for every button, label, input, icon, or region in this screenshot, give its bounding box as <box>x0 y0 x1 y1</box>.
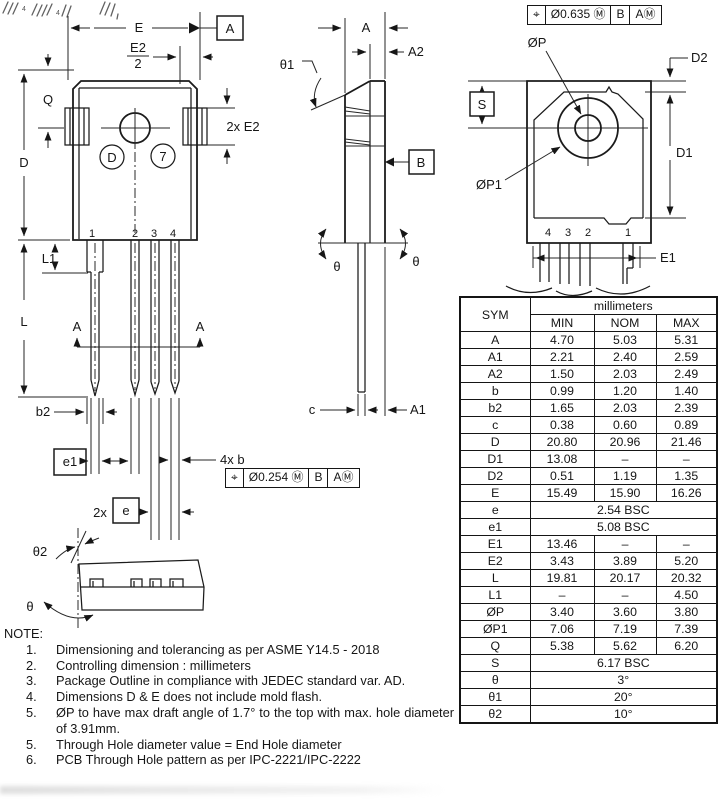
gdt-position-icon: ⌖ <box>226 469 244 487</box>
table-cell-max: – <box>656 536 717 553</box>
notes-title: NOTE: <box>4 626 456 642</box>
back-leads <box>506 243 650 296</box>
table-cell-max: 0.89 <box>656 417 717 434</box>
table-cell-max: 1.40 <box>656 383 717 400</box>
table-cell-nom: 3.60 <box>594 604 656 621</box>
table-cell-nom: 2.40 <box>594 349 656 366</box>
table-cell-nom: 2.03 <box>594 400 656 417</box>
table-cell-sym: D1 <box>460 451 530 468</box>
dim-label-D1: D1 <box>676 145 693 160</box>
table-row: b21.652.032.39 <box>460 400 717 417</box>
dim-label-e1: e1 <box>63 454 77 469</box>
note-text: Dimensioning and tolerancing as per ASME… <box>56 642 456 658</box>
dim-label-E2: E2 <box>130 40 146 55</box>
table-cell-min: 0.99 <box>530 383 594 400</box>
table-cell-nom: 3.89 <box>594 553 656 570</box>
table-cell-nom: 1.19 <box>594 468 656 485</box>
pin-number: 1 <box>89 228 95 240</box>
table-cell-nom: 0.60 <box>594 417 656 434</box>
bottom-profile-view: θ2 θ <box>26 528 204 628</box>
dim-label-A: A <box>362 20 371 35</box>
table-cell-span: 5.08 BSC <box>530 519 717 536</box>
note-number: 3. <box>26 673 56 689</box>
table-header-nom: NOM <box>594 315 656 332</box>
table-cell-min: 1.50 <box>530 366 594 383</box>
note-text: ØP to have max draft angle of 1.7° to th… <box>56 705 456 737</box>
table-cell-max: 16.26 <box>656 485 717 502</box>
datum-b-label: B <box>417 155 426 170</box>
table-cell-min: 3.40 <box>530 604 594 621</box>
table-cell-nom: 15.90 <box>594 485 656 502</box>
table-cell-min: 3.43 <box>530 553 594 570</box>
note-item: 5.ØP to have max draft angle of 1.7° to … <box>4 705 456 737</box>
circle-d-label: D <box>107 150 116 165</box>
scan-smudge <box>0 786 445 794</box>
table-cell-sym: L1 <box>460 587 530 604</box>
section-label-a: A <box>73 319 82 334</box>
table-header-min: MIN <box>530 315 594 332</box>
pin-number: 4 <box>545 227 551 239</box>
circle-7-label: 7 <box>159 149 166 164</box>
table-cell-sym: A1 <box>460 349 530 366</box>
table-cell-sym: E <box>460 485 530 502</box>
table-row: θ3° <box>460 672 717 689</box>
table-row: E23.433.895.20 <box>460 553 717 570</box>
dim-label-b2: b2 <box>36 404 50 419</box>
note-text: Controlling dimension : millimeters <box>56 658 456 674</box>
table-row: A12.212.402.59 <box>460 349 717 366</box>
note-number: 6. <box>26 752 56 768</box>
dim-label-2xE2: 2x E2 <box>226 119 259 134</box>
dim-label-theta: θ <box>26 599 33 614</box>
table-cell-nom: – <box>594 587 656 604</box>
package-outline-drawing: 4 4 E A E2 2 D Q <box>0 0 725 800</box>
dim-label-e: e <box>122 503 129 518</box>
gdt-datum-b: B <box>309 469 328 487</box>
table-row: A21.502.032.49 <box>460 366 717 383</box>
table-cell-sym: ØP <box>460 604 530 621</box>
dimension-table: SYM millimeters MIN NOM MAX A4.705.035.3… <box>459 296 718 724</box>
note-item: 6.PCB Through Hole pattern as per IPC-22… <box>4 752 456 768</box>
table-cell-sym: A <box>460 332 530 349</box>
table-cell-nom: – <box>594 536 656 553</box>
table-cell-sym: e <box>460 502 530 519</box>
table-cell-min: – <box>530 587 594 604</box>
table-row: c0.380.600.89 <box>460 417 717 434</box>
table-row: L1––4.50 <box>460 587 717 604</box>
table-row: Q5.385.626.20 <box>460 638 717 655</box>
note-number: 4. <box>26 689 56 705</box>
dim-label-4xb: 4x b <box>220 452 245 467</box>
table-row: E113.46–– <box>460 536 717 553</box>
note-text: PCB Through Hole pattern as per IPC-2221… <box>56 752 456 768</box>
note-text: Dimensions D & E does not include mold f… <box>56 689 456 705</box>
gdt-datum-am: AⓂ <box>328 469 358 487</box>
note-item: 4.Dimensions D & E does not include mold… <box>4 689 456 705</box>
table-cell-sym: D2 <box>460 468 530 485</box>
table-cell-sym: b <box>460 383 530 400</box>
table-cell-nom: 1.20 <box>594 383 656 400</box>
table-cell-sym: E2 <box>460 553 530 570</box>
table-cell-min: 4.70 <box>530 332 594 349</box>
table-cell-nom: – <box>594 451 656 468</box>
note-number: 5. <box>26 705 56 737</box>
table-cell-nom: 20.96 <box>594 434 656 451</box>
pin-number: 2 <box>585 227 591 239</box>
dim-label-Q: Q <box>43 92 53 107</box>
artifact-digit: 4 <box>56 10 60 17</box>
dim-label-2x: 2x <box>93 505 107 520</box>
dim-label-E2-den: 2 <box>134 56 141 71</box>
table-row: ØP3.403.603.80 <box>460 604 717 621</box>
front-leads <box>87 240 179 396</box>
dim-label-L1: L1 <box>42 251 56 266</box>
table-row: e2.54 BSC <box>460 502 717 519</box>
datum-a-label: A <box>226 21 235 36</box>
pin-number: 2 <box>132 228 138 240</box>
table-header-max: MAX <box>656 315 717 332</box>
artifact-digit: 4 <box>22 6 26 13</box>
table-row: θ120° <box>460 689 717 706</box>
table-cell-max: 1.35 <box>656 468 717 485</box>
table-cell-span: 10° <box>530 706 717 724</box>
note-number: 2. <box>26 658 56 674</box>
dim-label-theta-left: θ <box>333 259 340 274</box>
table-cell-sym: θ2 <box>460 706 530 724</box>
dim-label-theta1: θ1 <box>280 57 294 72</box>
dim-label-OP: ØP <box>528 35 547 50</box>
table-cell-max: 2.59 <box>656 349 717 366</box>
dim-label-A2: A2 <box>408 44 424 59</box>
section-label-a: A <box>196 319 205 334</box>
table-cell-max: 3.80 <box>656 604 717 621</box>
dim-label-S: S <box>478 97 487 112</box>
pin-number: 1 <box>625 227 631 239</box>
dim-label-theta-right: θ <box>412 254 419 269</box>
table-row: e15.08 BSC <box>460 519 717 536</box>
table-cell-sym: θ <box>460 672 530 689</box>
dim-label-theta2: θ2 <box>33 544 47 559</box>
note-item: 1.Dimensioning and tolerancing as per AS… <box>4 642 456 658</box>
table-cell-min: 1.65 <box>530 400 594 417</box>
notes-list: 1.Dimensioning and tolerancing as per AS… <box>4 642 456 768</box>
table-cell-min: 5.38 <box>530 638 594 655</box>
table-cell-min: 13.46 <box>530 536 594 553</box>
table-cell-sym: A2 <box>460 366 530 383</box>
table-row: E15.4915.9016.26 <box>460 485 717 502</box>
table-cell-sym: D <box>460 434 530 451</box>
table-cell-nom: 2.03 <box>594 366 656 383</box>
scan-artifacts: 4 4 <box>3 2 118 19</box>
table-cell-sym: θ1 <box>460 689 530 706</box>
notes-section: NOTE: 1.Dimensioning and tolerancing as … <box>4 626 456 768</box>
table-cell-max: 2.39 <box>656 400 717 417</box>
dim-label-OP1: ØP1 <box>476 177 502 192</box>
table-cell-max: 21.46 <box>656 434 717 451</box>
table-cell-sym: e1 <box>460 519 530 536</box>
note-item: 3.Package Outline in compliance with JED… <box>4 673 456 689</box>
dim-label-D2: D2 <box>691 50 708 65</box>
table-row: S6.17 BSC <box>460 655 717 672</box>
table-cell-nom: 7.19 <box>594 621 656 638</box>
table-row: A4.705.035.31 <box>460 332 717 349</box>
table-cell-min: 0.51 <box>530 468 594 485</box>
table-cell-nom: 5.03 <box>594 332 656 349</box>
table-row: D113.08–– <box>460 451 717 468</box>
datum-a-flag <box>189 23 200 34</box>
table-cell-span: 3° <box>530 672 717 689</box>
table-cell-max: 5.20 <box>656 553 717 570</box>
table-cell-sym: S <box>460 655 530 672</box>
table-cell-span: 2.54 BSC <box>530 502 717 519</box>
note-number: 1. <box>26 642 56 658</box>
datum-b-flag <box>385 158 394 167</box>
dim-table-body: A4.705.035.31A12.212.402.59A21.502.032.4… <box>460 332 717 724</box>
note-text: Package Outline in compliance with JEDEC… <box>56 673 456 689</box>
table-cell-max: – <box>656 451 717 468</box>
table-header-sym: SYM <box>460 297 530 332</box>
feature-control-frame-hole: ⌖ Ø0.635 Ⓜ B AⓂ <box>527 5 662 25</box>
dim-label-A1: A1 <box>410 402 426 417</box>
note-text: Through Hole diameter value = End Hole d… <box>56 737 456 753</box>
front-view: E A E2 2 D Q <box>18 12 260 540</box>
table-cell-max: 2.49 <box>656 366 717 383</box>
table-cell-max: 20.32 <box>656 570 717 587</box>
feature-control-frame-leads: ⌖ Ø0.254 Ⓜ B AⓂ <box>225 468 360 488</box>
table-row: θ210° <box>460 706 717 724</box>
table-cell-min: 13.08 <box>530 451 594 468</box>
table-row: ØP17.067.197.39 <box>460 621 717 638</box>
dim-label-D: D <box>19 155 28 170</box>
gdt-datum-b: B <box>611 6 630 24</box>
table-cell-min: 7.06 <box>530 621 594 638</box>
gdt-tolerance: Ø0.254 Ⓜ <box>244 469 310 487</box>
table-cell-max: 7.39 <box>656 621 717 638</box>
gdt-position-icon: ⌖ <box>528 6 546 24</box>
table-cell-max: 5.31 <box>656 332 717 349</box>
table-cell-min: 0.38 <box>530 417 594 434</box>
note-item: 5.Through Hole diameter value = End Hole… <box>4 737 456 753</box>
table-cell-sym: ØP1 <box>460 621 530 638</box>
table-cell-span: 20° <box>530 689 717 706</box>
table-cell-span: 6.17 BSC <box>530 655 717 672</box>
table-row: D20.8020.9621.46 <box>460 434 717 451</box>
table-cell-min: 15.49 <box>530 485 594 502</box>
table-cell-nom: 5.62 <box>594 638 656 655</box>
dim-label-L: L <box>20 314 27 329</box>
table-cell-sym: L <box>460 570 530 587</box>
note-item: 2.Controlling dimension : millimeters <box>4 658 456 674</box>
pin-number: 4 <box>170 228 176 240</box>
dim-label-c: c <box>309 402 316 417</box>
back-view: ØP D2 S ØP1 D1 4 3 2 1 <box>468 35 708 296</box>
table-cell-sym: b2 <box>460 400 530 417</box>
pin-number: 3 <box>151 228 157 240</box>
table-row: D20.511.191.35 <box>460 468 717 485</box>
table-cell-nom: 20.17 <box>594 570 656 587</box>
table-cell-max: 6.20 <box>656 638 717 655</box>
table-cell-sym: Q <box>460 638 530 655</box>
gdt-datum-am: AⓂ <box>630 6 660 24</box>
table-cell-max: 4.50 <box>656 587 717 604</box>
table-cell-sym: c <box>460 417 530 434</box>
table-header-unit: millimeters <box>530 297 717 315</box>
note-number: 5. <box>26 737 56 753</box>
table-row: L19.8120.1720.32 <box>460 570 717 587</box>
pin-number: 3 <box>565 227 571 239</box>
table-cell-min: 2.21 <box>530 349 594 366</box>
side-view: A A2 θ1 B θ θ <box>280 12 434 417</box>
table-cell-min: 19.81 <box>530 570 594 587</box>
dim-label-E1: E1 <box>660 250 676 265</box>
dim-label-E: E <box>135 20 144 35</box>
table-cell-sym: E1 <box>460 536 530 553</box>
gdt-tolerance: Ø0.635 Ⓜ <box>546 6 612 24</box>
table-row: b0.991.201.40 <box>460 383 717 400</box>
table-cell-min: 20.80 <box>530 434 594 451</box>
